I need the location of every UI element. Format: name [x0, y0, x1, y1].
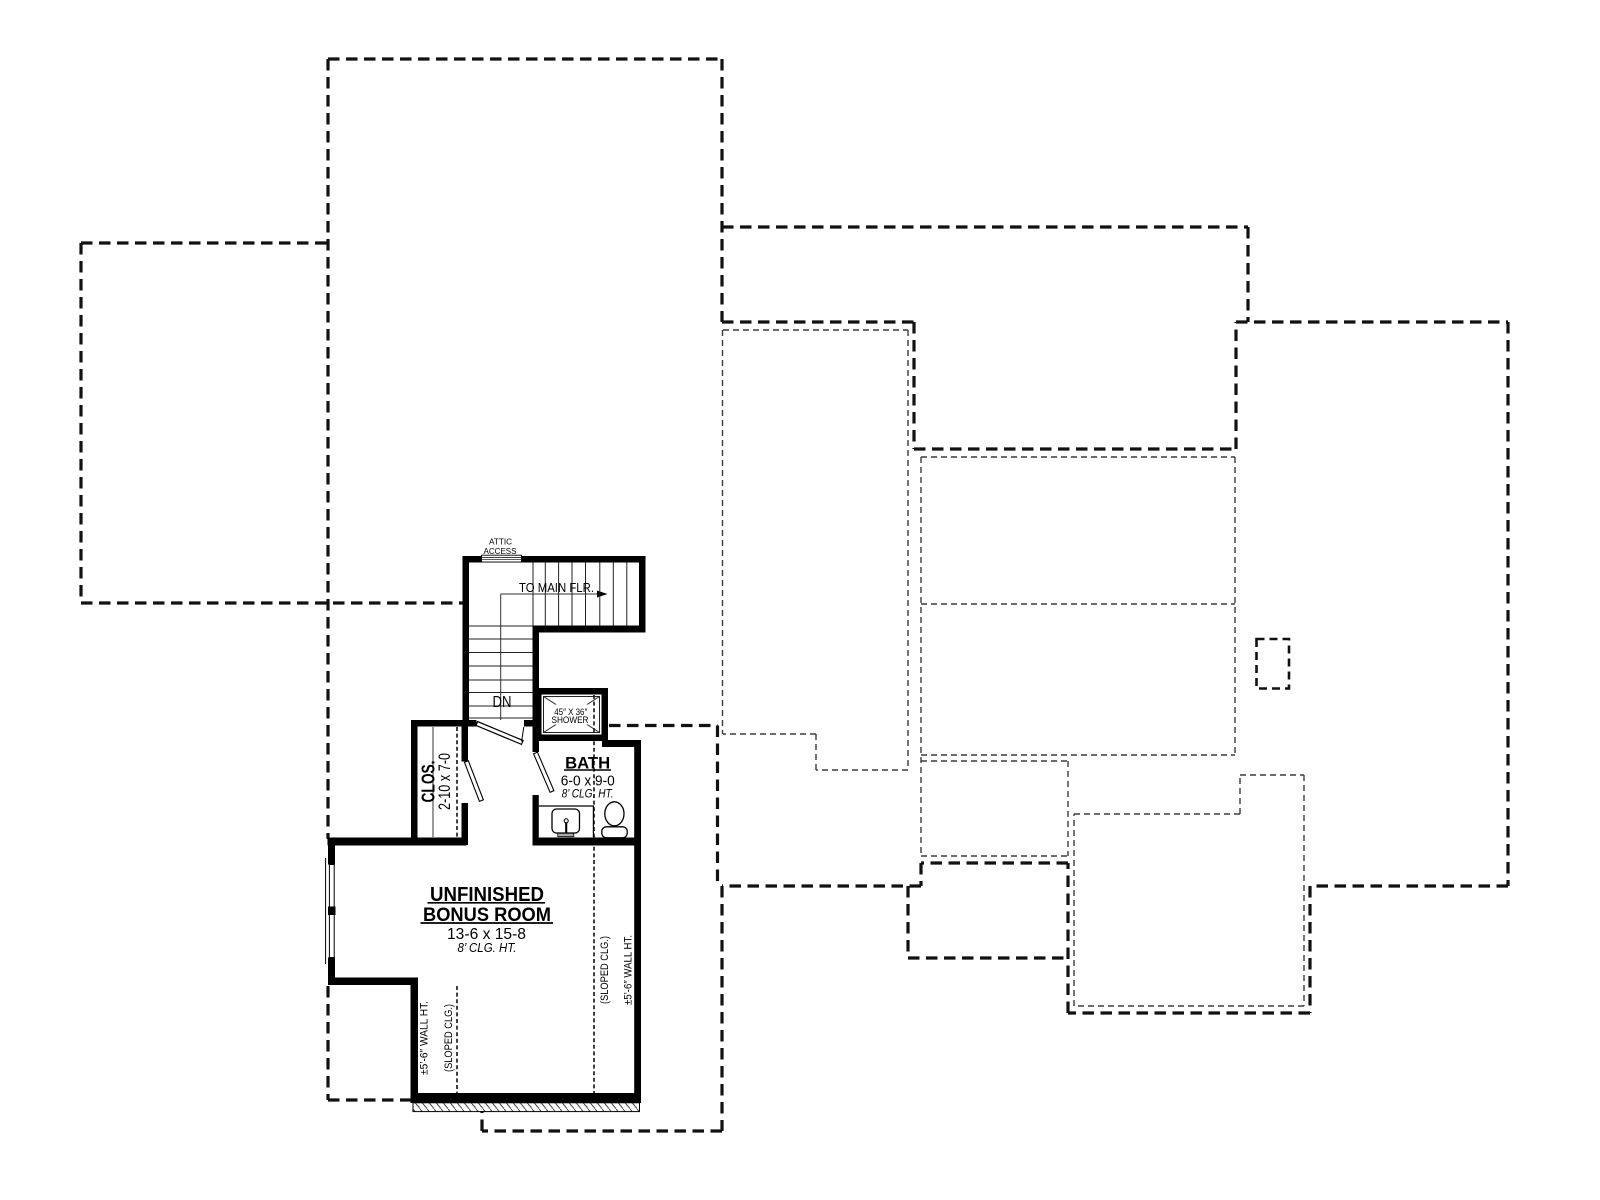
svg-text:TO MAIN FLR.: TO MAIN FLR.	[519, 580, 594, 595]
svg-text:8’ CLG. HT.: 8’ CLG. HT.	[562, 788, 614, 800]
svg-text:6-0 x 9-0: 6-0 x 9-0	[561, 773, 615, 789]
svg-text:DN: DN	[493, 694, 512, 711]
svg-text:(SLOPED CLG.): (SLOPED CLG.)	[599, 936, 611, 1004]
svg-text:8’ CLG. HT.: 8’ CLG. HT.	[458, 941, 517, 955]
svg-text:±5’-6″ WALL HT.: ±5’-6″ WALL HT.	[419, 1001, 431, 1075]
svg-text:2-10 x 7-0: 2-10 x 7-0	[435, 753, 454, 810]
svg-text:SHOWER: SHOWER	[552, 715, 589, 725]
svg-text:±5’-6″ WALL HT.: ±5’-6″ WALL HT.	[623, 935, 635, 1005]
svg-text:ACCESS: ACCESS	[484, 546, 517, 556]
svg-text:(SLOPED CLG.): (SLOPED CLG.)	[443, 1004, 455, 1072]
